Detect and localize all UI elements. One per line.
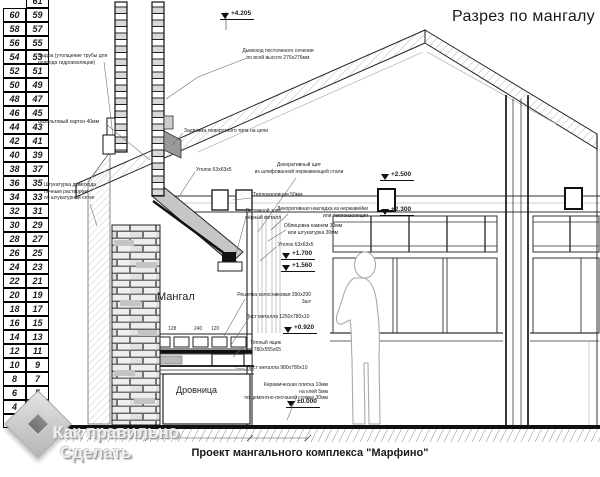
annotation-zadvizhka: Задвижка поворотного типа на цепи [184,128,268,135]
watermark-text-line1: Как правильно [53,423,179,443]
dimension-label: 128 [168,326,176,332]
watermark: Как правильно Сделать [0,390,220,477]
center-post [503,95,530,425]
ruler-cell: 17 [26,302,49,316]
drawing-title: Разрез по мангалу [452,8,595,26]
ruler-cell: 60 [3,8,26,22]
beam-section [236,190,252,210]
level-mark: +1.700 [281,250,315,260]
ruler-cell: 25 [26,246,49,260]
ruler-cell: 56 [3,36,26,50]
smoke-hood [152,188,243,263]
ruler-cell: 41 [26,134,49,148]
level-mark: +2.500 [380,171,414,181]
level-mark: +2.300 [380,206,414,216]
ruler-cell: 57 [26,22,49,36]
ruler-cell: 24 [3,260,26,274]
ruler-cell: 42 [3,134,26,148]
ruler-cell: 36 [3,176,26,190]
annotation-ugolok-2: Уголок 63х63х5 [278,242,314,249]
ruler-cell: 49 [26,78,49,92]
silhouette [336,252,380,424]
ruler-cell: 14 [3,330,26,344]
ruler-cell: 28 [3,232,26,246]
annotation-basalt: Базальтовый картон 40мм [38,119,99,126]
ruler-cell: 13 [26,330,49,344]
ruler-cell: 11 [26,344,49,358]
ruler-cell: 31 [26,204,49,218]
annotation-nakladka: Декоративная накладка из нержавейки или … [277,206,368,219]
ruler-cell: 47 [26,92,49,106]
ruler-cell: 50 [3,78,26,92]
ruler-cell: 61 [26,0,49,8]
ruler-cell: 12 [3,344,26,358]
level-mark: ±0.000 [286,398,320,408]
ruler-cell: 16 [3,316,26,330]
dimension-label: 240 [194,326,202,332]
ruler-cell: 46 [3,106,26,120]
ruler-cell: 10 [3,358,26,372]
watermark-text-line2: Сделать [60,443,132,463]
ruler-cell: 52 [3,64,26,78]
ruler-cell: 38 [3,162,26,176]
drawing-caption: Проект мангального комплекса "Марфино" [190,447,430,459]
ruler-cell: 44 [3,120,26,134]
level-mark: +4.205 [220,10,254,20]
ruler-cell: 19 [26,288,49,302]
ruler-cell: 30 [3,218,26,232]
ruler-cell: 26 [3,246,26,260]
ruler-cell: 54 [3,50,26,64]
beam-section [565,188,582,209]
ruler-cell: 40 [3,148,26,162]
level-mark: +0.920 [283,324,317,334]
annotation-vydra: Выдра (утолщение трубы для подвода гидро… [38,53,107,66]
chimney-left-wall [115,2,127,152]
vydra-step [103,135,115,154]
ruler-cell: 34 [3,190,26,204]
ruler-cell: 39 [26,148,49,162]
ruler-cell: 37 [26,162,49,176]
annotation-oblitsovka: Облицовка камнем 30мм или штукатурка 30м… [284,223,342,236]
ruler-cell: 18 [3,302,26,316]
annotation-reshetka: Решетка колосниковая 390х290 3шт [237,292,311,305]
ruler-cell: 32 [3,204,26,218]
annotation-shtukaturka: Штукатурка дымохода печным раствором по … [44,182,96,202]
ruler-cell: 29 [26,218,49,232]
ruler-cell: 20 [3,288,26,302]
ruler-cell: 55 [26,36,49,50]
annotation-yashchik: Тёплый ящик 780х555х65 [250,340,281,353]
ruler-cell: 48 [3,92,26,106]
annotation-dymohod: Дымоход постоянного сечения по всей высо… [242,48,313,61]
annotation-zont: Вытяжной зонт чёрный металл [245,208,281,221]
ruler-cell: 23 [26,260,49,274]
annotation-list-metalla-2: Лист металла 980х780х10 [247,365,308,372]
ruler-cell: 21 [26,274,49,288]
ruler-cell: 22 [3,274,26,288]
ruler-cell: 15 [26,316,49,330]
annotation-ugolok-1: Уголок 63х63х5 [196,167,232,174]
grate [155,337,246,347]
annotation-mangal: Мангал [157,290,195,304]
chimney-right-wall [152,2,164,196]
ruler-cell: 9 [26,358,49,372]
dimension-label: 120 [211,326,219,332]
ruler-cell: 51 [26,64,49,78]
ruler-cell: 7 [26,372,49,386]
beam-section [212,190,228,210]
level-mark: +1.560 [281,262,315,272]
ruler-cell: 58 [3,22,26,36]
drawing-canvas: Разрез по мангалу Проект мангального ком… [0,0,600,477]
ruler-cell: 59 [26,8,49,22]
ruler-cell: 27 [26,232,49,246]
annotation-dekor-shchit: Декоративный щит из шлифованной нержавею… [255,162,344,175]
annotation-teploizolyatsiya: Теплоизоляция 50мм [253,192,303,199]
annotation-list-metalla-1: Лист металла 1250х780х10 [246,314,309,321]
ruler-cell: 8 [3,372,26,386]
